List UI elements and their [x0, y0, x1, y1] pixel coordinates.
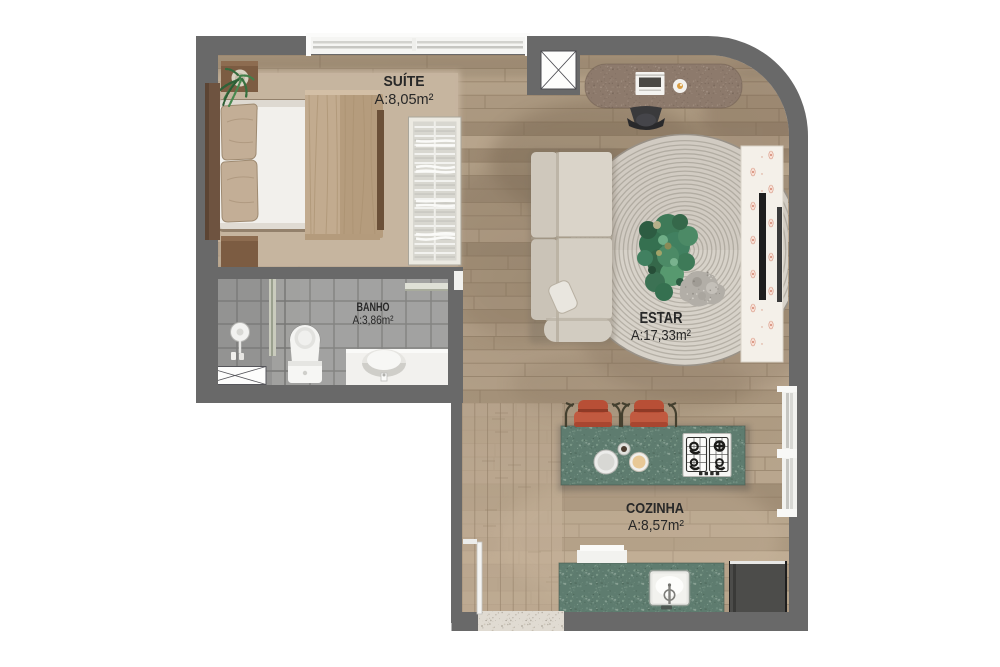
svg-text:A:3,86m²: A:3,86m²: [353, 313, 394, 327]
svg-text:SUÍTE: SUÍTE: [384, 73, 425, 90]
svg-text:COZINHA: COZINHA: [626, 500, 684, 517]
svg-text:A:17,33m²: A:17,33m²: [631, 327, 691, 344]
svg-text:A:8,57m²: A:8,57m²: [628, 518, 684, 534]
svg-text:A:8,05m²: A:8,05m²: [375, 91, 434, 108]
svg-text:ESTAR: ESTAR: [640, 310, 683, 327]
